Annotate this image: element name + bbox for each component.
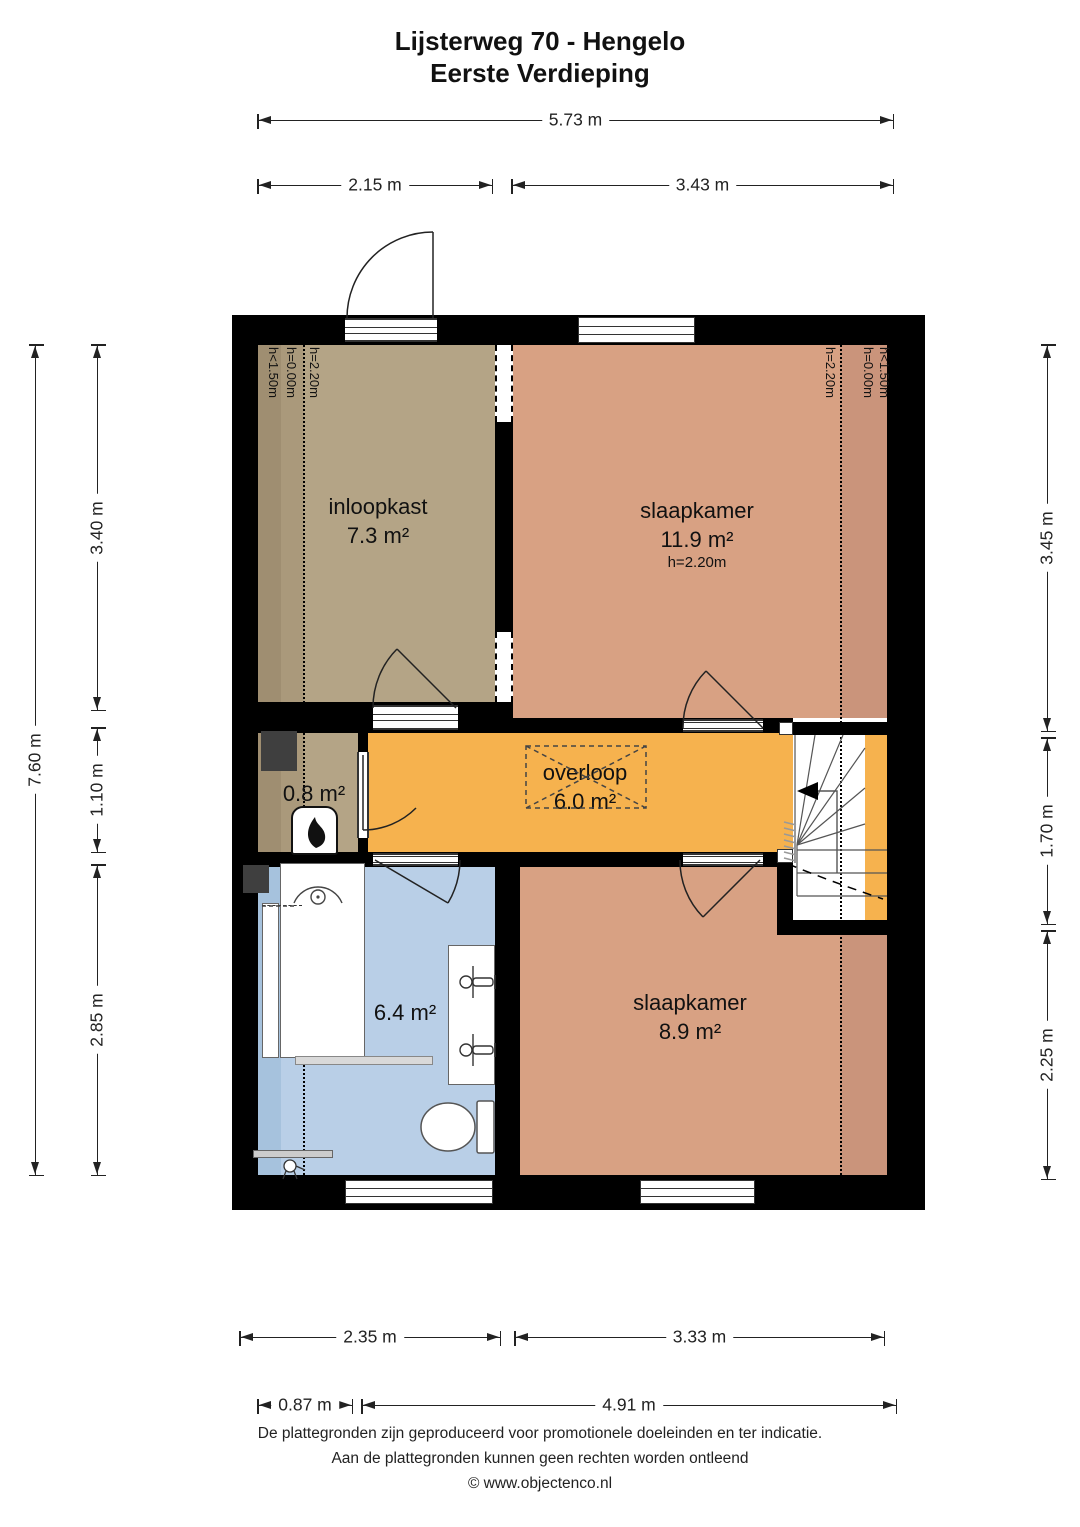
duct-shaft-bottom xyxy=(243,865,269,893)
dim-top-total: 5.73 m xyxy=(258,120,893,121)
dim-left-total: 7.60 m xyxy=(35,345,36,1175)
window-slaapkamer-1 xyxy=(578,317,695,343)
room-name: slaapkamer xyxy=(640,496,754,525)
stair-jamb-bottom xyxy=(777,849,793,863)
dashed-wall-lower xyxy=(495,632,513,702)
exterior-door-sill xyxy=(345,318,437,342)
arrow-left-icon xyxy=(259,1401,271,1409)
height-note-inloopkast-zero: h=0.00m xyxy=(284,347,299,398)
arrow-up-icon xyxy=(93,729,101,741)
arrow-down-icon xyxy=(1043,911,1051,923)
dim-label: 2.85 m xyxy=(87,986,108,1054)
dim-label: 4.91 m xyxy=(595,1395,663,1416)
room-label-slaapkamer-1: slaapkamer 11.9 m² h=2.20m xyxy=(640,496,754,572)
room-area: 6.4 m² xyxy=(374,998,436,1027)
dim-bottom-row2-segment-2: 4.91 m xyxy=(362,1405,896,1406)
dim-top-segment-2: 3.43 m xyxy=(512,185,893,186)
boiler xyxy=(291,806,338,855)
room-area: 7.3 m² xyxy=(328,521,427,550)
door-sill-techniek xyxy=(357,752,369,838)
dim-bottom-row1-segment-2: 3.33 m xyxy=(515,1337,884,1338)
room-area: 8.9 m² xyxy=(633,1017,747,1046)
duct-shaft-top xyxy=(261,731,297,771)
radiator xyxy=(253,1150,333,1158)
dim-right-segment-2: 1.70 m xyxy=(1047,738,1048,924)
dim-label: 3.45 m xyxy=(1037,504,1058,572)
stair-jamb-top xyxy=(779,722,793,735)
floor-slaapkamer-2-lowzone xyxy=(840,935,887,1175)
floor-slaapkamer-1-lowzone xyxy=(840,345,887,718)
arrow-up-icon xyxy=(1043,739,1051,751)
wall-right xyxy=(887,315,925,1210)
room-area: 11.9 m² xyxy=(640,525,754,554)
arrow-left-icon xyxy=(259,181,271,189)
dim-label: 3.43 m xyxy=(669,175,737,196)
height-note-slaapkamer-zero: h=0.00m xyxy=(861,347,876,398)
arrow-right-icon xyxy=(871,1333,883,1341)
room-label-inloopkast: inloopkast 7.3 m² xyxy=(328,492,427,550)
shower-bath xyxy=(280,863,365,1058)
arrow-right-icon xyxy=(339,1401,351,1409)
wall-badkamer-slaapkamer2 xyxy=(495,867,520,1175)
arrow-down-icon xyxy=(1043,1166,1051,1178)
arrow-down-icon xyxy=(93,839,101,851)
dim-right-segment-1: 3.45 m xyxy=(1047,345,1048,731)
arrow-up-icon xyxy=(93,866,101,878)
dim-left-segment-1: 3.40 m xyxy=(97,345,98,710)
shower-screen-dashed xyxy=(262,905,302,906)
room-label-techniek: 0.8 m² xyxy=(283,779,345,808)
room-name: slaapkamer xyxy=(633,988,747,1017)
dim-right-segment-3: 2.25 m xyxy=(1047,931,1048,1179)
wall-stair-bottom xyxy=(793,920,887,935)
arrow-left-icon xyxy=(259,116,271,124)
floor-inloopkast-lowzone-dark xyxy=(258,345,281,702)
shower-side-panel xyxy=(262,903,279,1058)
door-sill-slaapkamer-2 xyxy=(683,853,763,866)
arrow-up-icon xyxy=(31,346,39,358)
wall-bottom xyxy=(232,1175,925,1210)
arrow-right-icon xyxy=(880,116,892,124)
arrow-down-icon xyxy=(31,1162,39,1174)
height-note-slaapkamer-line: h=2.20m xyxy=(823,347,838,398)
dim-bottom-row2-segment-1: 0.87 m xyxy=(258,1405,352,1406)
height-note-inloopkast-wall: h<1.50m xyxy=(266,347,281,398)
dim-label: 2.25 m xyxy=(1037,1021,1058,1089)
room-label-overloop: overloop 6.0 m² xyxy=(543,758,627,816)
dim-label: 0.87 m xyxy=(271,1395,339,1416)
footer-copyright: © www.objectenco.nl xyxy=(0,1471,1080,1496)
dim-bottom-row1-segment-1: 2.35 m xyxy=(240,1337,500,1338)
dim-label: 2.35 m xyxy=(336,1327,404,1348)
arrow-left-icon xyxy=(363,1401,375,1409)
wall-left xyxy=(232,315,258,1210)
arrow-left-icon xyxy=(513,181,525,189)
dim-label: 3.33 m xyxy=(666,1327,734,1348)
vanity-double-sink xyxy=(448,945,495,1085)
dim-left-segment-2: 1.10 m xyxy=(97,728,98,852)
bath-step xyxy=(295,1056,433,1065)
room-label-badkamer: 6.4 m² xyxy=(374,998,436,1027)
wall-stair-top xyxy=(793,722,887,735)
floor-inloopkast-lowzone-mid xyxy=(281,345,304,702)
door-sill-badkamer xyxy=(373,853,458,866)
door-sill-inloopkast xyxy=(373,705,458,730)
footer-disclaimer-2: Aan de plattegronden kunnen geen rechten… xyxy=(0,1446,1080,1471)
page-subtitle: Eerste Verdieping xyxy=(0,58,1080,88)
room-name: inloopkast xyxy=(328,492,427,521)
room-area: 0.8 m² xyxy=(283,779,345,808)
arrow-left-icon xyxy=(516,1333,528,1341)
window-badkamer xyxy=(345,1180,493,1204)
dim-label: 1.70 m xyxy=(1037,797,1058,865)
wall-stair-left xyxy=(777,852,793,935)
dim-label: 3.40 m xyxy=(87,494,108,562)
arrow-right-icon xyxy=(880,181,892,189)
dim-label: 5.73 m xyxy=(542,110,610,131)
room-ceiling-height: h=2.20m xyxy=(640,554,754,572)
door-sill-slaapkamer-1 xyxy=(683,719,763,732)
height-line-right xyxy=(840,345,842,1175)
arrow-up-icon xyxy=(93,346,101,358)
exterior-door xyxy=(347,232,433,318)
dim-label: 1.10 m xyxy=(87,756,108,824)
dim-left-segment-3: 2.85 m xyxy=(97,865,98,1175)
wall-inloopkast-slaapkamer xyxy=(495,422,513,632)
room-label-slaapkamer-2: slaapkamer 8.9 m² xyxy=(633,988,747,1046)
arrow-up-icon xyxy=(1043,346,1051,358)
arrow-left-icon xyxy=(241,1333,253,1341)
arrow-down-icon xyxy=(1043,718,1051,730)
arrow-right-icon xyxy=(487,1333,499,1341)
room-name: overloop xyxy=(543,758,627,787)
dim-top-segment-1: 2.15 m xyxy=(258,185,492,186)
floor-stairwell xyxy=(793,735,865,920)
window-slaapkamer-2 xyxy=(640,1180,755,1204)
arrow-down-icon xyxy=(93,1162,101,1174)
height-note-inloopkast-line: h=2.20m xyxy=(307,347,322,398)
floor-stairwell-landing xyxy=(865,735,887,920)
page-title: Lijsterweg 70 - Hengelo xyxy=(0,26,1080,56)
arrow-right-icon xyxy=(479,181,491,189)
arrow-up-icon xyxy=(1043,932,1051,944)
arrow-right-icon xyxy=(883,1401,895,1409)
dim-label: 2.15 m xyxy=(341,175,409,196)
arrow-down-icon xyxy=(93,697,101,709)
room-area: 6.0 m² xyxy=(543,787,627,816)
dashed-wall-upper xyxy=(495,345,513,422)
footer-disclaimer-1: De plattegronden zijn geproduceerd voor … xyxy=(0,1421,1080,1446)
dim-label: 7.60 m xyxy=(25,726,46,794)
height-note-slaapkamer-wall: h<1.50m xyxy=(877,347,892,398)
